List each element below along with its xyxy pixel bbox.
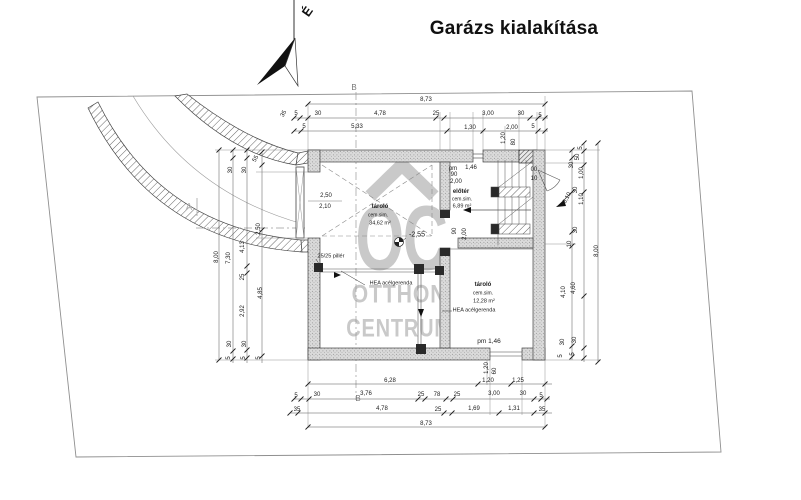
dim-label: 50 [575, 154, 581, 161]
window-lines [473, 154, 522, 356]
dim-label: 10 [567, 241, 573, 248]
dim-label: 30 [228, 167, 234, 174]
dim-label: 5 [558, 354, 564, 357]
dim-label: 35 [539, 407, 546, 413]
garage-door [296, 167, 342, 238]
annotation-label: 34,62 m² [369, 221, 391, 227]
annotation-label: 10 [531, 176, 538, 182]
dim-label: 5 [570, 352, 576, 355]
dim-label: 30 [573, 227, 579, 234]
dim-label: 2,50 [256, 223, 262, 235]
dim-label: 30 [518, 111, 525, 117]
dim-label: 30 [572, 337, 578, 344]
dim-label: 25 [435, 407, 442, 413]
beam-arrows [334, 272, 424, 317]
annotation-label: előtér [453, 189, 469, 195]
site-boundary [37, 91, 721, 457]
dim-label: 30 [569, 162, 575, 169]
annotation-label: 90 [451, 172, 458, 178]
dim-label: 25 [454, 392, 461, 398]
annotation-label: 2,00 [462, 228, 468, 240]
door-jamb-blocks [440, 210, 450, 256]
dim-label: 7,30 [226, 252, 232, 264]
dim-label: 1,69 [468, 406, 480, 412]
page-title: Garázs kialakítása [430, 18, 598, 40]
dim-label: 30 [520, 391, 527, 397]
pillars [314, 263, 444, 354]
dim-label: 5 [241, 356, 247, 359]
dim-label: 4,10 [561, 286, 567, 298]
dim-label: 1,20 [484, 362, 490, 374]
annotation-label: cem.sim. [473, 292, 493, 297]
dim-label: 30 [560, 339, 566, 346]
dim-label: 5 [539, 393, 542, 399]
annotation-label: 25/25 pillér [318, 254, 345, 260]
annotation-label: 6,89 m² [453, 204, 472, 210]
dim-label: 4,78 [374, 111, 386, 117]
annotation-label: tároló [475, 282, 492, 288]
dim-label: 1,25 [512, 378, 524, 384]
annotation-label: HEA acélgerenda [453, 308, 496, 314]
dim-label: 30 [242, 341, 248, 348]
plan-drawing [0, 0, 801, 500]
annotation-label: tároló [372, 204, 389, 210]
dim-label: 8,00 [594, 245, 600, 257]
dim-label: 80 [511, 139, 517, 146]
dim-label: 5 [226, 356, 232, 359]
level-marker-255 [395, 238, 407, 247]
annotation-label: 90 [452, 228, 458, 235]
dim-label: 8,73 [420, 421, 432, 427]
annotation-label: 1,46 [465, 165, 477, 171]
dim-label: 1,30 [464, 125, 476, 131]
dim-label: 30 [315, 111, 322, 117]
annotation-label: 12,28 m² [473, 299, 495, 305]
section-marker: B [351, 84, 356, 92]
dim-label: 5 [578, 146, 584, 149]
dim-label: 25 [418, 392, 425, 398]
annotation-label: 00 [531, 167, 538, 173]
dim-label: 1,10 [579, 193, 585, 205]
dim-label: 25 [240, 274, 246, 281]
dim-label: 1,20 [482, 378, 494, 384]
dim-label: 3,00 [482, 111, 494, 117]
dim-label: 25 [433, 111, 440, 117]
dim-label: pm 1,46 [477, 339, 501, 346]
dim-label: 4,78 [376, 406, 388, 412]
dim-label: 60 [492, 368, 498, 375]
dim-label: 2,00 [506, 125, 518, 131]
dim-label: 5 [531, 124, 534, 130]
annotation-label: 2,50 [320, 193, 332, 199]
dim-label: 30 [314, 392, 321, 398]
dim-label: 78 [434, 392, 441, 398]
dim-label: 5 [302, 124, 305, 130]
annotation-label: cem.sim. [368, 214, 388, 219]
annotation-label: -2,55 [409, 232, 425, 239]
annotation-label: 2,00 [450, 179, 462, 185]
dim-label: 30 [242, 167, 248, 174]
section-marker: A [186, 203, 193, 213]
dim-label: 1,31 [508, 406, 520, 412]
dim-label: 2,92 [240, 305, 246, 317]
dim-label: 30 [227, 341, 233, 348]
dim-label: 1,00 [579, 167, 585, 179]
dim-label: 5 [538, 113, 541, 119]
dim-label: 8,73 [420, 97, 432, 103]
dim-label: 4,13 [240, 241, 246, 253]
dim-label: 5 [294, 111, 297, 117]
dim-label: 5,33 [351, 124, 363, 130]
annotation-label: 2,10 [319, 204, 331, 210]
dim-label: 8,00 [214, 251, 220, 263]
north-arrow [257, 0, 298, 86]
dim-label: 4,60 [571, 282, 577, 294]
dim-label: 5 [256, 356, 262, 359]
dim-label: 35 [294, 407, 301, 413]
stair-landings [491, 187, 530, 234]
dim-label: 3,00 [488, 391, 500, 397]
floor-plan-page: OC OTTHON CENTRUM [0, 0, 801, 500]
dim-label: 1,20 [501, 132, 507, 144]
annotation-label: cem.sim. [452, 198, 472, 203]
section-marker: B [355, 395, 360, 403]
dim-label: 6,28 [384, 378, 396, 384]
annotation-label: HEA acélgerenda [370, 281, 413, 287]
dim-label: 5 [294, 393, 297, 399]
dim-label: 4,85 [258, 287, 264, 299]
dim-label: 3,76 [360, 391, 372, 397]
